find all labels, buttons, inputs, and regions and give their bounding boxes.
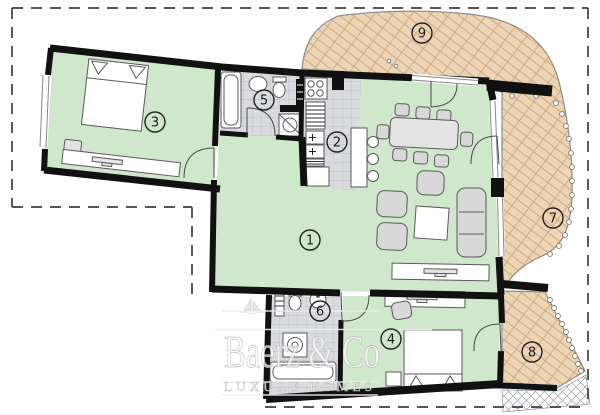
dining-chair-icon — [416, 107, 431, 120]
sink-icon — [249, 77, 267, 92]
watermark-brand: Baerz & Co — [224, 326, 380, 377]
kitchen-counter — [351, 128, 367, 187]
toilet-icon — [273, 77, 286, 98]
wall-stub-terrace9-7 — [487, 85, 552, 91]
svg-text:9: 9 — [418, 27, 426, 42]
dining-chair-icon — [377, 125, 390, 140]
floor-plan: Baerz & Co LUXURY HOMES 1 2 3 4 5 6 7 8 … — [0, 0, 600, 415]
shower-icon — [279, 114, 302, 136]
nightstand-icon — [386, 372, 401, 386]
desk-chair-icon — [391, 300, 413, 320]
armchair-icon — [376, 190, 407, 218]
coffee-table-icon — [414, 206, 449, 240]
dining-chair-icon — [395, 103, 410, 116]
sofa-icon — [457, 188, 486, 257]
dining-chair-icon — [434, 155, 449, 168]
bar-stool-icon — [368, 137, 379, 182]
svg-text:1: 1 — [306, 234, 314, 249]
window — [498, 198, 505, 256]
stove-icon — [305, 78, 327, 99]
radiator-icon — [296, 79, 304, 107]
terrace-8-floor — [502, 291, 585, 388]
svg-text:3: 3 — [151, 116, 159, 131]
svg-text:7: 7 — [549, 212, 557, 227]
double-bed-icon — [81, 59, 148, 131]
armchair-icon — [417, 171, 445, 196]
wall-stub-terrace7-8 — [502, 284, 548, 288]
dining-chair-icon — [413, 152, 428, 165]
svg-text:5: 5 — [260, 94, 268, 109]
oven-icon — [306, 102, 325, 129]
dining-chair-icon — [392, 148, 407, 161]
radiator-icon — [275, 291, 284, 316]
armchair-icon — [376, 222, 407, 251]
svg-text:6: 6 — [316, 305, 324, 320]
watermark-tagline: LUXURY HOMES — [224, 379, 376, 394]
svg-text:2: 2 — [333, 136, 341, 151]
svg-text:4: 4 — [387, 333, 395, 348]
dining-chair-icon — [460, 132, 473, 147]
floor-plan-drawing: Baerz & Co LUXURY HOMES 1 2 3 4 5 6 7 8 … — [0, 0, 600, 415]
svg-text:8: 8 — [528, 346, 536, 361]
tv-sideboard-icon — [392, 263, 489, 281]
bathtub-icon — [221, 72, 241, 128]
bed-icon — [404, 330, 462, 391]
window — [40, 75, 49, 148]
dining-table-icon — [389, 117, 458, 150]
